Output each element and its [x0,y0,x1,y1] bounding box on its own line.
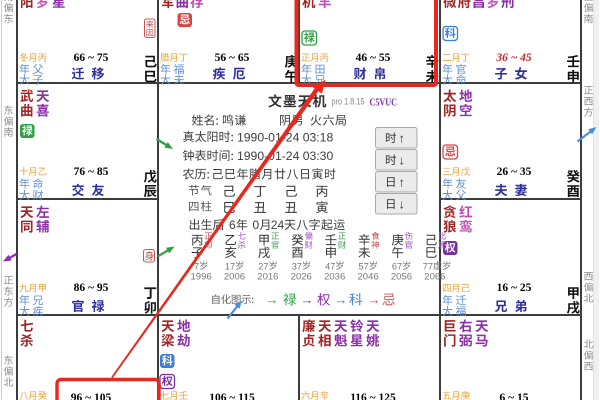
svg-text:2066: 2066 [424,271,445,282]
svg-text:86 ~ 95: 86 ~ 95 [74,282,109,294]
svg-text:pro 1.8.15: pro 1.8.15 [332,97,365,107]
svg-text:24: 24 [271,218,285,232]
svg-text:27: 27 [258,261,268,271]
svg-text:96 ~ 105: 96 ~ 105 [71,392,112,400]
svg-text:66 ~ 75: 66 ~ 75 [74,52,109,64]
svg-text:26 ~ 35: 26 ~ 35 [497,166,532,178]
svg-text:↑: ↑ [399,176,405,190]
svg-text:→: → [301,292,314,307]
svg-text:6: 6 [229,218,236,232]
svg-text:2036: 2036 [324,271,345,282]
svg-text:2046: 2046 [358,271,379,282]
svg-text:→: → [368,292,381,307]
svg-text:1990-01-24 03:30: 1990-01-24 03:30 [237,149,333,163]
svg-text:46 ~ 55: 46 ~ 55 [356,52,391,64]
svg-text:→: → [266,292,279,307]
svg-text:116 ~ 125: 116 ~ 125 [350,392,396,400]
svg-text:17: 17 [225,261,235,271]
svg-text:↓: ↓ [399,198,405,212]
svg-text:6 ~ 15: 6 ~ 15 [500,392,529,400]
svg-text:106 ~ 115: 106 ~ 115 [209,392,255,400]
svg-text:0: 0 [253,218,260,232]
svg-text:↑: ↑ [399,132,405,146]
svg-text:76 ~ 85: 76 ~ 85 [74,166,109,178]
svg-text:C5VUC: C5VUC [370,96,398,108]
svg-text:1996: 1996 [191,271,212,282]
svg-text:37: 37 [292,261,302,271]
svg-text:16 ~ 25: 16 ~ 25 [497,282,532,294]
svg-text:2026: 2026 [291,271,312,282]
svg-text:↓: ↓ [399,154,405,168]
svg-text:2006: 2006 [224,271,245,282]
svg-text:67: 67 [392,261,402,271]
svg-text:77: 77 [423,261,433,271]
svg-text:57: 57 [359,261,369,271]
svg-text:56 ~ 65: 56 ~ 65 [215,52,250,64]
svg-text:2056: 2056 [391,271,412,282]
svg-text:2016: 2016 [257,271,278,282]
svg-text:47: 47 [325,261,335,271]
svg-text:→: → [335,292,348,307]
svg-text:36 ~ 45: 36 ~ 45 [495,52,532,64]
